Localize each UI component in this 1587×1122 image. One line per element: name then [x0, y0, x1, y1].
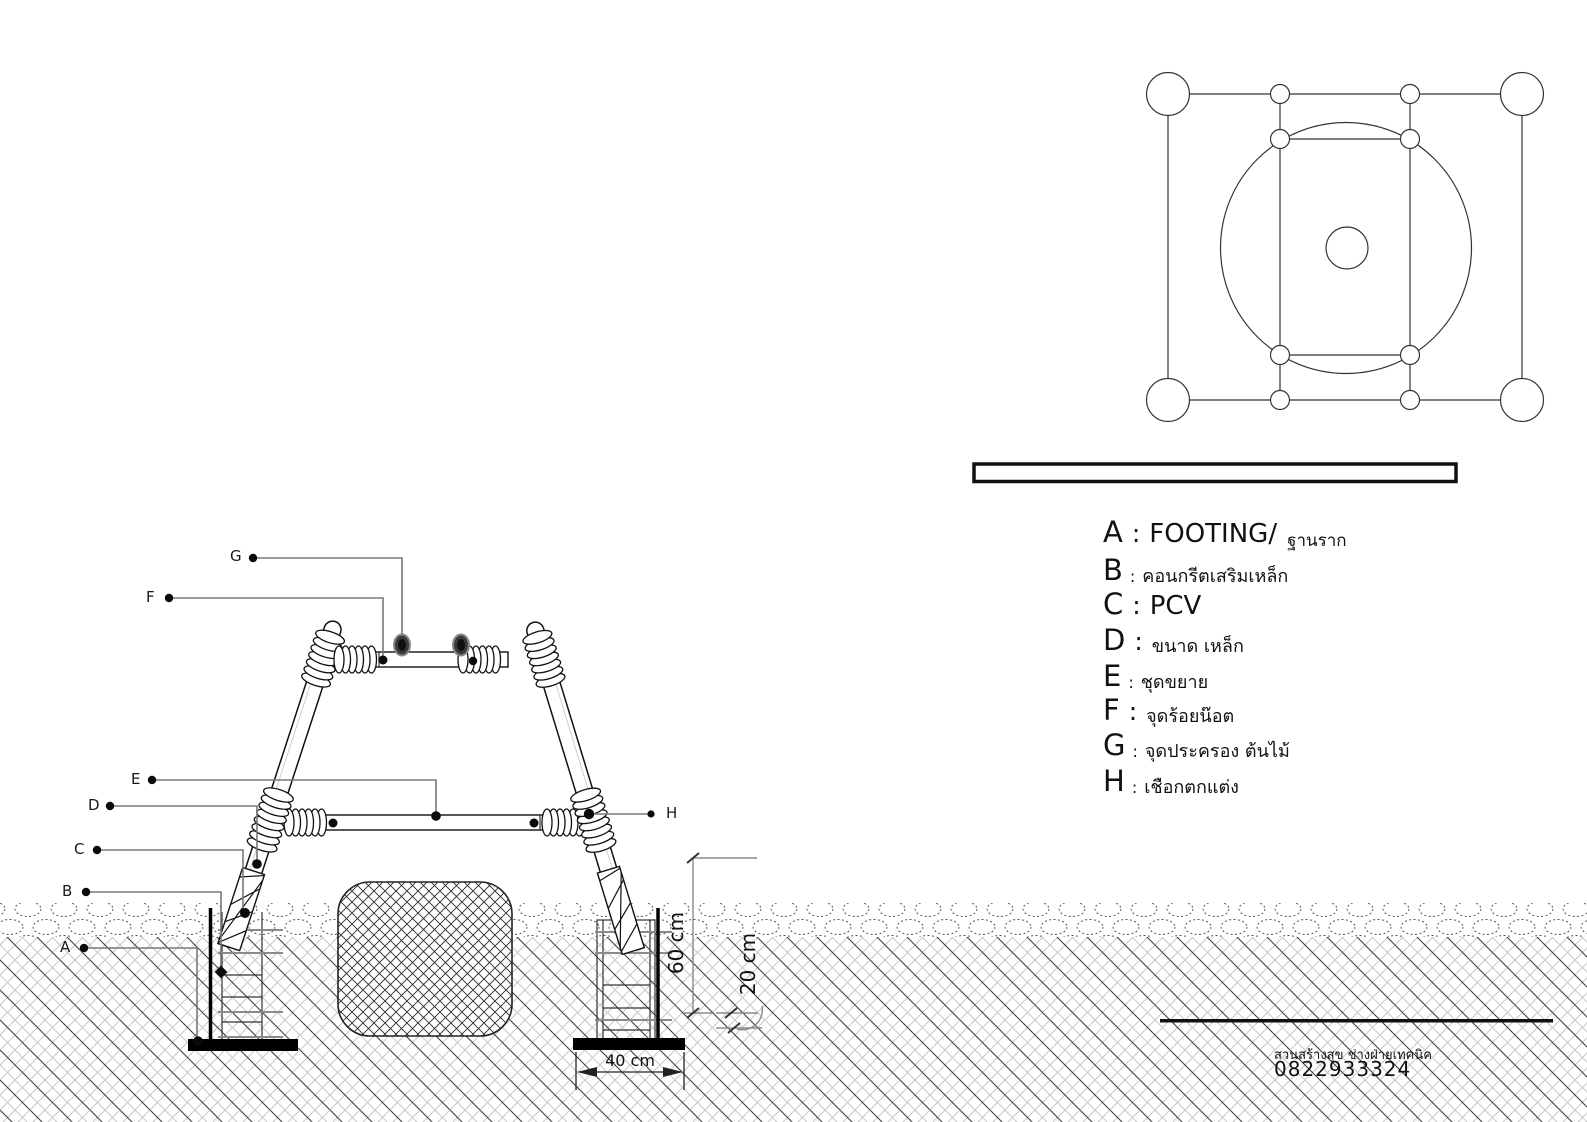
- base-plate-left: [188, 1039, 298, 1051]
- legend-row-e: E : ชุดขยาย: [1103, 662, 1208, 694]
- plan-view: [1147, 73, 1544, 422]
- legend-sep: :: [1125, 778, 1144, 797]
- legend-letter: B: [1103, 556, 1123, 585]
- legend-label: คอนกรีตเสริมเหล็ก: [1142, 561, 1288, 590]
- legend-row-g: G : จุดประครอง ต้นไม้: [1103, 731, 1290, 763]
- legend-label: เชือกตกแต่ง: [1144, 772, 1239, 801]
- legend-letter: G: [1103, 731, 1125, 760]
- legend-letter: A: [1103, 518, 1123, 547]
- legend-row-a: A : FOOTING/ ฐานราก: [1103, 518, 1347, 550]
- marker-label-c: C: [74, 840, 84, 858]
- legend-sep: :: [1123, 591, 1149, 620]
- plan-corner-posts: [1147, 73, 1544, 422]
- legend-letter: H: [1103, 767, 1125, 796]
- leader-e: [152, 780, 436, 812]
- marker-label-b: B: [62, 882, 72, 900]
- marker-label-d: D: [88, 796, 100, 814]
- legend-suffix: ฐานราก: [1287, 527, 1347, 554]
- leader-d: [110, 806, 257, 860]
- leader-c: [97, 850, 245, 912]
- legend-row-d: D : ขนาด เหล็ก: [1103, 626, 1244, 658]
- legend-label: PCV: [1150, 591, 1202, 621]
- drawing-sheet: G F E D C B A H 60 cm 20 cm 40 cm A : FO…: [0, 0, 1587, 1122]
- legend-row-c: C : PCV: [1103, 590, 1201, 621]
- marker-label-g: G: [230, 547, 242, 565]
- dim-40cm-label: 40 cm: [600, 1051, 660, 1070]
- base-plate-right: [573, 1038, 685, 1050]
- plan-scale-bar: [974, 464, 1456, 482]
- legend-letter: D: [1103, 626, 1125, 655]
- legend-label: ชุดขยาย: [1141, 667, 1208, 696]
- marker-label-e: E: [131, 770, 140, 788]
- footer-rule: [1160, 1019, 1553, 1023]
- soil-crosshatch: [0, 937, 1587, 1122]
- top-bar: [334, 646, 508, 673]
- legend-sep: :: [1125, 627, 1151, 656]
- legend-row-f: F : จุดร้อยน๊อต: [1103, 696, 1234, 728]
- legend-sep: :: [1120, 697, 1146, 726]
- plan-center-circle: [1326, 227, 1368, 269]
- legend-label: จุดประครอง ต้นไม้: [1145, 736, 1290, 765]
- legend-sep: :: [1123, 567, 1142, 586]
- marker-label-a: A: [60, 938, 70, 956]
- marker-label-f: F: [146, 588, 155, 606]
- legend-label: ขนาด เหล็ก: [1152, 631, 1244, 660]
- phone-number: 0822933324: [1274, 1057, 1411, 1081]
- dim-60cm-label: 60 cm: [664, 898, 688, 988]
- legend-sep: :: [1123, 519, 1149, 548]
- legend-row-h: H : เชือกตกแต่ง: [1103, 767, 1239, 799]
- legend-label: จุดร้อยน๊อต: [1146, 701, 1234, 730]
- marker-label-h: H: [666, 804, 677, 822]
- left-leg: [214, 617, 349, 952]
- legend-letter: E: [1103, 662, 1121, 691]
- dim-20cm-label: 20 cm: [736, 919, 760, 1009]
- legend-label: FOOTING/: [1149, 519, 1277, 549]
- plan-outer-circle: [1221, 123, 1472, 374]
- legend-sep: :: [1125, 742, 1144, 761]
- legend-sep: :: [1121, 673, 1140, 692]
- legend-letter: C: [1103, 590, 1123, 619]
- legend-letter: F: [1103, 696, 1120, 725]
- root-ball: [338, 882, 512, 1036]
- legend-row-b: B : คอนกรีตเสริมเหล็ก: [1103, 556, 1288, 588]
